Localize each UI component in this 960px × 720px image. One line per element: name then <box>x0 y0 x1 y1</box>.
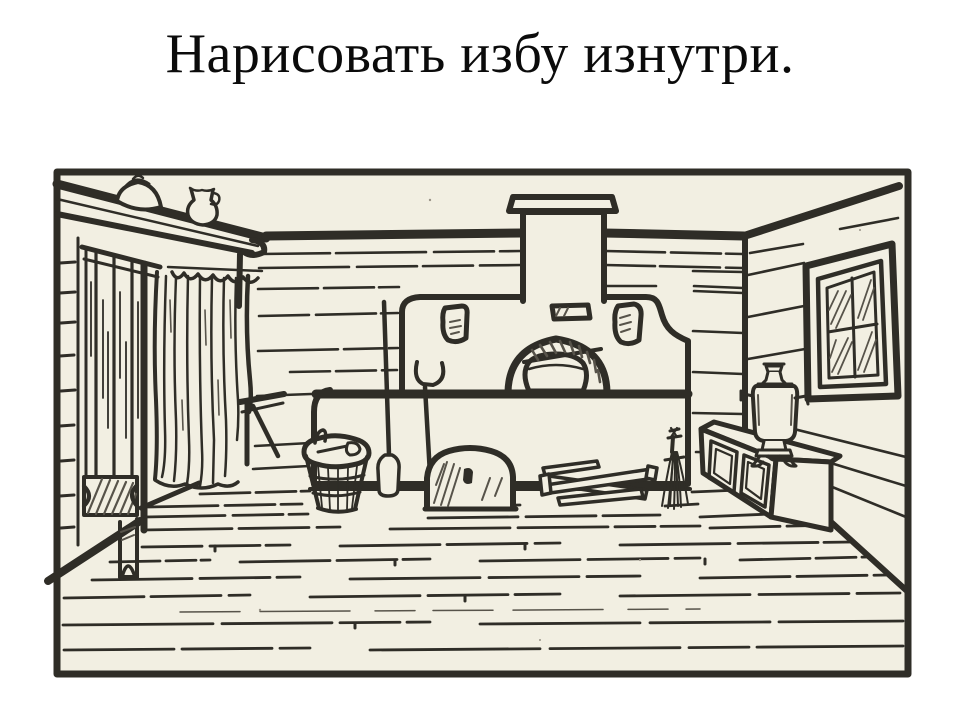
window <box>806 244 898 399</box>
chimney-stack <box>523 212 604 301</box>
stove-damper <box>425 448 516 509</box>
izba-illustration <box>0 0 960 720</box>
cupboard-base-panel <box>84 477 137 515</box>
oven-mitt-left <box>443 306 467 342</box>
slide: { "slide": { "title": "Нарисовать избу и… <box>0 0 960 720</box>
chimney-cap <box>509 197 616 211</box>
stove-vent <box>552 305 590 319</box>
oven-mitt-right <box>615 304 641 344</box>
jug <box>188 188 220 225</box>
ceiling-beam <box>266 233 744 236</box>
